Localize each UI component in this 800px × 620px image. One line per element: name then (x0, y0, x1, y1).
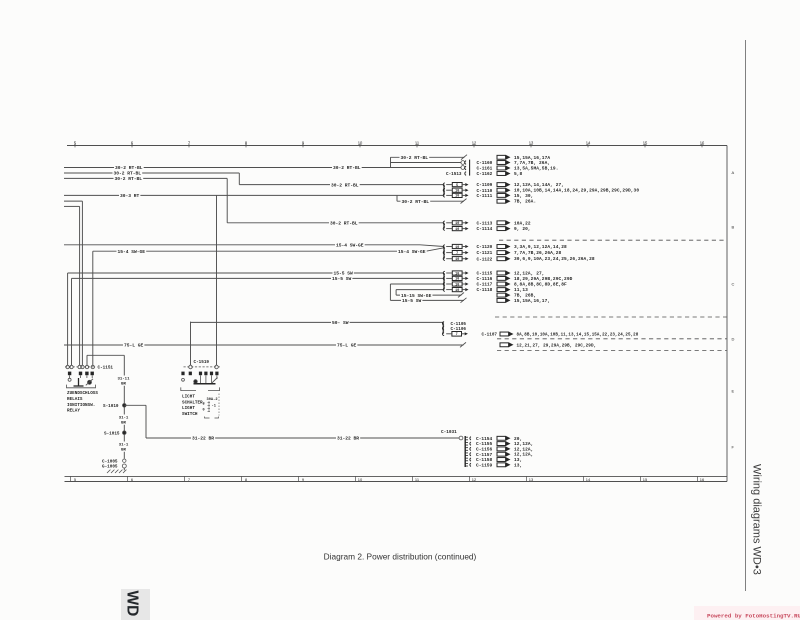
svg-text:8A,8B,10,10A,10B,11,13,14,15,1: 8A,8B,10,10A,10B,11,13,14,15,15A,22,23,2… (517, 334, 639, 338)
svg-text:15-5 SW: 15-5 SW (332, 276, 352, 282)
svg-text:6: 6 (131, 140, 134, 145)
svg-text:30-2 RT-BL: 30-2 RT-BL (331, 182, 359, 188)
svg-text:12,12A,: 12,12A, (514, 446, 533, 452)
svg-text:7B, 26A.: 7B, 26A. (514, 199, 536, 205)
svg-text:75-L GE: 75-L GE (337, 343, 357, 349)
svg-text:C-1157: C-1157 (476, 452, 493, 458)
svg-text:5: 5 (74, 140, 77, 145)
svg-text:BR: BR (121, 421, 126, 425)
svg-text:31-22 BR: 31-22 BR (192, 436, 214, 442)
svg-text:30,6,9,10A,23,24,25,26,26A,28: 30,6,9,10A,23,24,25,26,26A,28 (514, 256, 595, 262)
svg-text:C-1160: C-1160 (477, 161, 493, 166)
svg-text:RELAY: RELAY (67, 409, 80, 414)
svg-text:IGNITIONSW.: IGNITIONSW. (67, 403, 95, 408)
svg-text:SWITCH: SWITCH (182, 412, 198, 417)
svg-text:Wiring diagrams WD•3: Wiring diagrams WD•3 (751, 464, 763, 575)
svg-text:11,13: 11,13 (514, 287, 528, 293)
svg-text:C-1121: C-1121 (477, 251, 493, 256)
svg-text:12,12A,14,14A, 27,: 12,12A,14,14A, 27, (514, 182, 564, 188)
svg-text:10: 10 (455, 195, 459, 199)
svg-text:7,7A,7B, 26A,: 7,7A,7B, 26A, (514, 160, 550, 166)
svg-text:C-1031: C-1031 (441, 430, 457, 435)
svg-text:LIGHT: LIGHT (182, 406, 195, 411)
svg-text:20,: 20, (514, 436, 522, 442)
svg-text:10,10A,10B,14,14A,18,24,29,29A: 10,10A,10B,14,14A,18,24,29,29A,29B,29C,2… (514, 188, 639, 194)
svg-text:13,: 13, (514, 457, 522, 463)
svg-text:12,12A,: 12,12A, (514, 441, 533, 447)
svg-text:13,: 13, (514, 462, 522, 468)
svg-text:7: 7 (456, 252, 458, 256)
svg-text:RELAIS: RELAIS (67, 397, 83, 402)
svg-text:10: 10 (455, 289, 459, 293)
svg-text:12: 12 (472, 477, 477, 482)
svg-text:C-1114: C-1114 (477, 227, 493, 232)
svg-text:13,5A,5MA,5B,19.: 13,5A,5MA,5B,19. (514, 166, 559, 172)
svg-text:9, 20,: 9, 20, (514, 226, 531, 232)
svg-text:C-1161: C-1161 (477, 167, 493, 172)
svg-text:F: F (732, 445, 735, 450)
svg-text:3: 3 (203, 403, 205, 407)
svg-text:C-1107: C-1107 (482, 332, 498, 337)
svg-text:B: B (732, 225, 735, 230)
svg-text:30-2 RT-BL: 30-2 RT-BL (401, 155, 429, 161)
svg-text:8,8A,8B,8C,8D,8E,8F: 8,8A,8B,8C,8D,8E,8F (514, 282, 567, 288)
svg-text:15-4 SW-GE: 15-4 SW-GE (398, 249, 426, 255)
svg-text:C-1111: C-1111 (477, 194, 493, 199)
svg-text:C-1162: C-1162 (477, 172, 493, 177)
svg-text:C-1154: C-1154 (476, 436, 493, 442)
svg-text:C-1158: C-1158 (476, 457, 493, 463)
svg-text:16: 16 (700, 140, 705, 145)
svg-text:10: 10 (358, 477, 363, 482)
svg-text:15-15 SW-GE: 15-15 SW-GE (401, 293, 432, 299)
svg-text:G-1005: G-1005 (102, 465, 118, 470)
svg-text:8: 8 (245, 140, 248, 145)
svg-text:15-4 SW-GE: 15-4 SW-GE (118, 249, 146, 255)
svg-text:C-1117: C-1117 (477, 283, 493, 288)
svg-text:15,15A,16,17,: 15,15A,16,17, (514, 298, 550, 304)
svg-text:C-1120: C-1120 (477, 245, 493, 250)
svg-text:5: 5 (456, 184, 458, 188)
svg-text:BR: BR (121, 382, 126, 386)
svg-text:BR: BR (121, 448, 126, 452)
svg-text:C-1151: C-1151 (98, 366, 114, 371)
svg-text:-1: -1 (212, 404, 217, 408)
svg-text:10: 10 (455, 283, 459, 287)
svg-text:D: D (732, 337, 735, 342)
svg-text:31-22 BR: 31-22 BR (337, 436, 359, 442)
svg-text:12,12A,: 12,12A, (514, 452, 533, 458)
svg-text:30-2 RT-BL: 30-2 RT-BL (402, 199, 430, 205)
svg-text:C-1122: C-1122 (477, 257, 493, 262)
svg-text:14: 14 (586, 477, 591, 482)
svg-text:C-1513: C-1513 (446, 172, 462, 177)
svg-text:13: 13 (529, 140, 534, 145)
svg-text:A: A (732, 170, 735, 175)
svg-text:C-1159: C-1159 (476, 462, 493, 468)
svg-text:C: C (732, 282, 735, 287)
svg-text:15, 30,: 15, 30, (514, 193, 533, 199)
svg-text:30-3 RT: 30-3 RT (120, 193, 140, 199)
svg-text:ZUENDSCHLOSS: ZUENDSCHLOSS (67, 391, 98, 396)
svg-text:18,29,29A,29B,29C,29D: 18,29,29A,29B,29C,29D (514, 276, 573, 282)
svg-text:10: 10 (455, 278, 459, 282)
svg-text:C-1118: C-1118 (477, 288, 493, 293)
svg-text:E: E (732, 389, 735, 394)
svg-text:S-1015: S-1015 (104, 431, 120, 436)
svg-text:WD: WD (124, 591, 141, 617)
svg-text:9: 9 (302, 140, 305, 145)
svg-text:7: 7 (188, 140, 191, 145)
svg-text:C-1113: C-1113 (477, 221, 493, 226)
svg-text:7,7A,7B,26,26A,28: 7,7A,7B,26,26A,28 (514, 250, 561, 256)
svg-text:12,21,27, 29,29A,29B, 29C,29D,: 12,21,27, 29,29A,29B, 29C,29D, (517, 343, 597, 348)
svg-text:10: 10 (358, 140, 363, 145)
svg-text:50- SW: 50- SW (332, 320, 349, 326)
svg-text:3,3A,9,12,12A,14,28: 3,3A,9,12,12A,14,28 (514, 244, 567, 250)
svg-text:15,15A,16,17A: 15,15A,16,17A (514, 155, 550, 161)
svg-text:30-2 RT-BL: 30-2 RT-BL (333, 165, 361, 171)
svg-text:10: 10 (455, 272, 459, 276)
svg-text:Powered by FotoHostingTV.RU: Powered by FotoHostingTV.RU (707, 613, 800, 620)
svg-text:10: 10 (455, 258, 459, 262)
svg-text:C-1156: C-1156 (476, 447, 493, 453)
svg-text:C-1519: C-1519 (194, 360, 210, 365)
svg-text:S-1010: S-1010 (103, 404, 119, 409)
svg-text:10A,22: 10A,22 (514, 220, 531, 226)
svg-text:C-1109: C-1109 (477, 183, 493, 188)
svg-text:10: 10 (455, 228, 459, 232)
svg-text:15: 15 (643, 140, 648, 145)
svg-text:LICHT: LICHT (182, 395, 195, 400)
svg-text:75-L GE: 75-L GE (124, 343, 144, 349)
svg-text:14: 14 (586, 140, 591, 145)
svg-text:0: 0 (203, 409, 205, 413)
svg-text:15: 15 (643, 477, 648, 482)
svg-text:30-2 RT-BL: 30-2 RT-BL (330, 220, 358, 226)
svg-text:16: 16 (700, 477, 705, 482)
svg-text:C-1115: C-1115 (477, 272, 493, 277)
svg-text:30-2 RT-BL: 30-2 RT-BL (115, 176, 143, 182)
svg-text:C-1155: C-1155 (476, 441, 493, 447)
svg-text:13: 13 (529, 477, 534, 482)
svg-text:30A-2: 30A-2 (207, 398, 218, 402)
svg-text:7B, 26B,: 7B, 26B, (514, 293, 536, 299)
svg-text:7: 7 (456, 333, 458, 337)
svg-text:Diagram 2. Power distribution: Diagram 2. Power distribution (continued… (324, 552, 477, 562)
svg-text:15-5 SW: 15-5 SW (402, 298, 422, 304)
svg-text:C-1116: C-1116 (477, 277, 493, 282)
svg-text:15-4 SW-GE: 15-4 SW-GE (336, 242, 364, 248)
svg-text:12,12A, 27,: 12,12A, 27, (514, 271, 545, 277)
svg-text:10: 10 (455, 222, 459, 226)
svg-text:5,8: 5,8 (514, 171, 523, 177)
svg-text:10: 10 (455, 246, 459, 250)
svg-text:12: 12 (472, 140, 477, 145)
svg-text:11: 11 (415, 140, 420, 145)
